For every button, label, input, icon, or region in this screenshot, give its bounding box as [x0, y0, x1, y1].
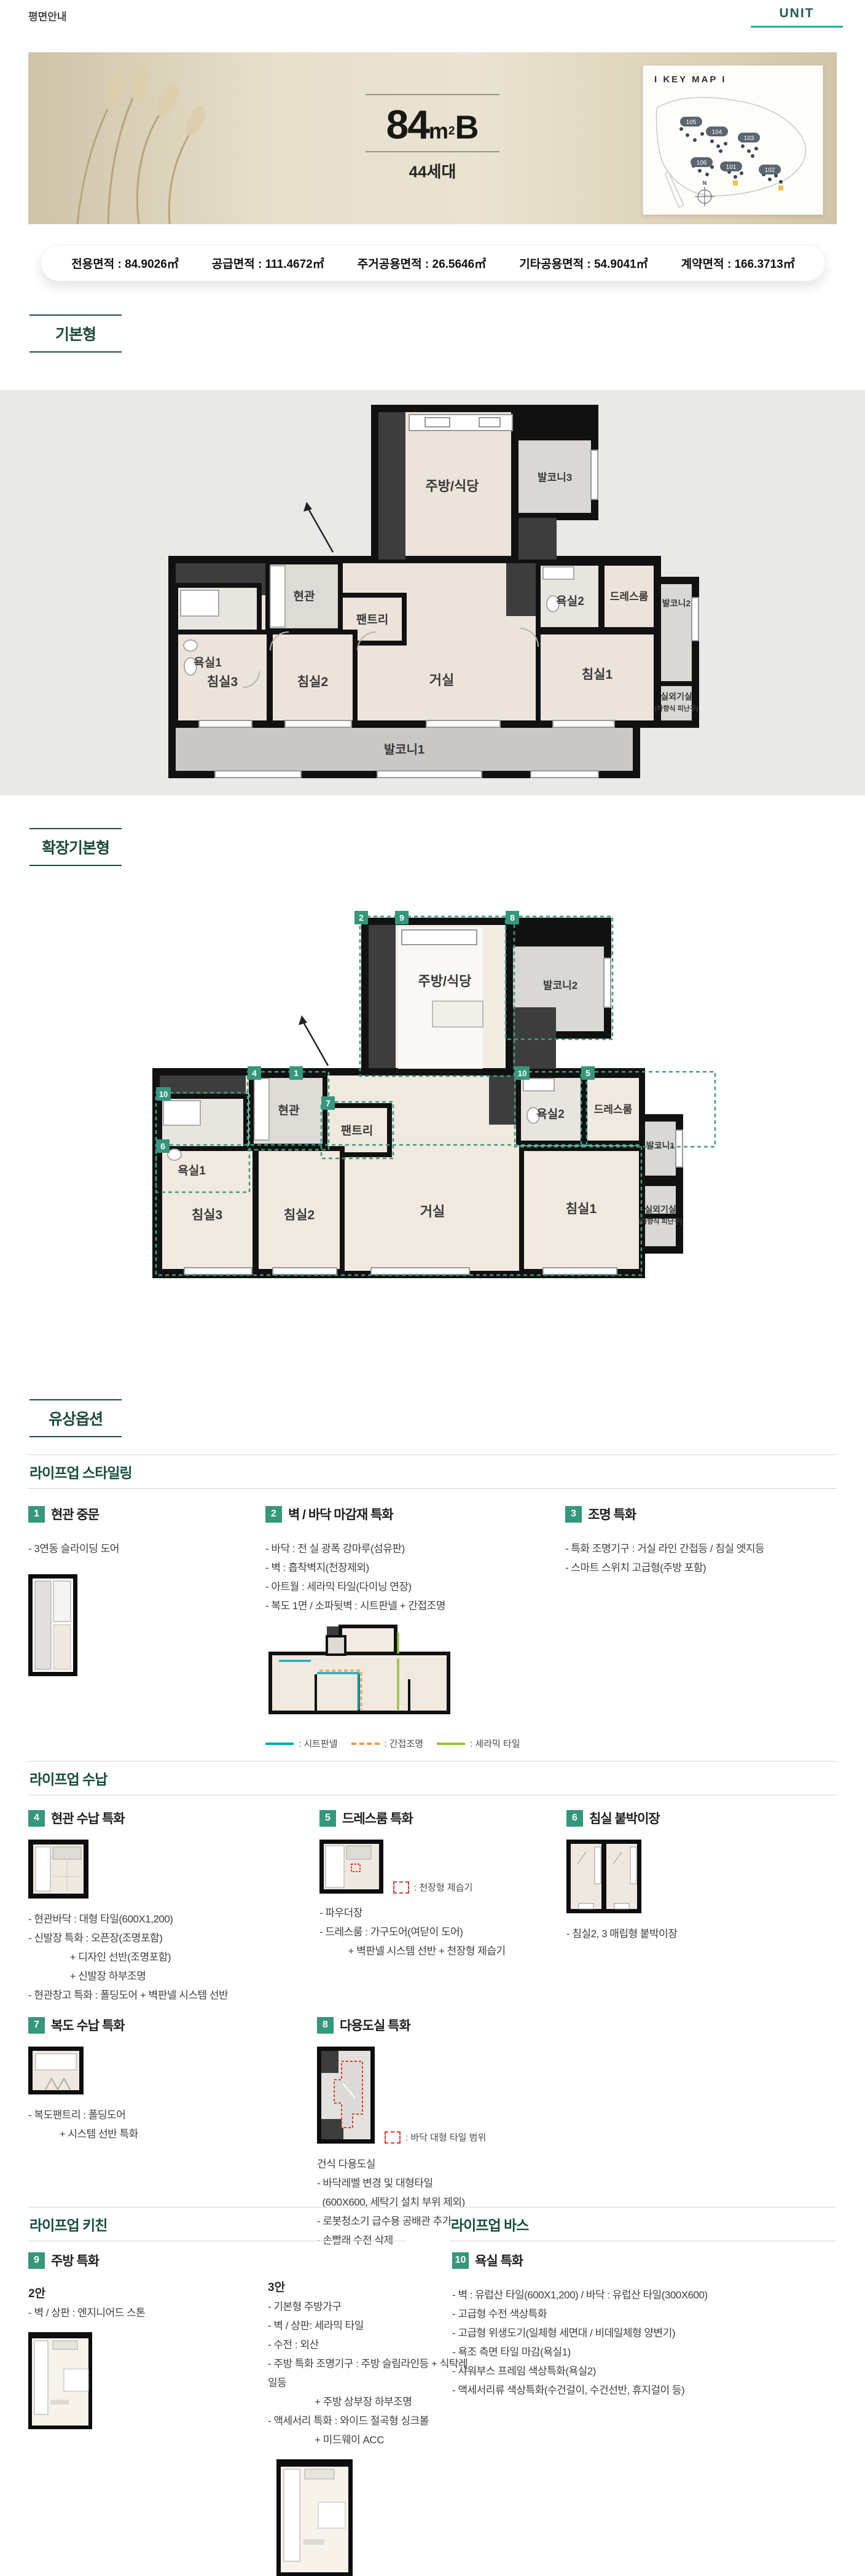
text-line: - 3연동 슬라이딩 도어 [28, 1539, 249, 1558]
room-label-bedroom2: 침실2 [284, 1208, 315, 1222]
keymap-title: I KEY MAP I [654, 74, 823, 85]
tag-6: 6 [160, 1141, 165, 1151]
text-line: - 복도 1면 / 소파뒷벽 : 시트판넬 + 간접조명 [265, 1596, 554, 1615]
legend-indirect-light: : 간접조명 [351, 1737, 424, 1750]
room-label-pantry: 팬트리 [356, 613, 388, 626]
floor-plan-extended: 2 9 8 4 1 7 10 10 5 6 주방/식당 발코니2 현관 팬트리 … [144, 884, 721, 1308]
room-label-bath1: 욕실1 [178, 1164, 206, 1177]
keymap-site-plan: 105 104 103 106 101 102 N [643, 85, 821, 211]
text-line: - 현관바닥 : 대형 타일(600X1,200) [28, 1910, 262, 1929]
legend-label: : 간접조명 [385, 1737, 424, 1750]
option-title: 욕실 특화 [475, 2251, 523, 2270]
unit-type-title: 84m2B [334, 101, 531, 148]
room-label-bedroom1: 침실1 [582, 668, 613, 682]
option-title: 주방 특화 [51, 2251, 99, 2270]
unit-type-block: 84m2B 44세대 [334, 95, 531, 182]
text-line: 기타공용면적 : 54.9041㎡ [519, 255, 648, 271]
text-line: - 신발장 특화 : 오픈장(조명포함) [28, 1929, 262, 1948]
room-label-living: 거실 [429, 673, 454, 688]
room-label-balcony2: 발코니2 [543, 980, 577, 991]
section-label-basic: 기본형 [29, 314, 122, 353]
text-line: - 벽 : 흡착벽지(천장제외) [265, 1558, 554, 1577]
kitchen-option2-label: 2안 [28, 2284, 249, 2301]
unit-type-suffix: B [455, 109, 479, 146]
option-title: 드레스룸 특화 [342, 1809, 413, 1827]
keymap-card: I KEY MAP I 105 104 103 106 101 102 [643, 65, 823, 215]
text-line: - 바닥레벨 변경 및 대형타일 [317, 2174, 593, 2193]
text-line: - 스마트 스위치 고급형(주방 포함) [565, 1558, 836, 1577]
kitchen-interior [398, 927, 483, 1069]
option-item-5: 5드레스룸 특화 : 천장형 제습기 - 파우더장- 드레스룸 : 가구도어(여… [319, 1809, 565, 1961]
top-bar: 평면안내 UNIT [0, 0, 865, 38]
option-item-10: 10욕실 특화 - 벽 : 유럽산 타일(600X1,200) / 바닥 : 유… [452, 2251, 833, 2400]
text-line: 건식 다용도실 [317, 2155, 593, 2174]
room-label-balcony2: 발코니2 [662, 598, 691, 608]
legend-sheet-panel: : 시트판넬 [265, 1737, 338, 1750]
option-title: 다용도실 특화 [340, 2016, 410, 2034]
compass-north-label: N [703, 180, 707, 186]
text-line: - 벽 / 상판 : 엔지니어드 스톤 [28, 2303, 249, 2322]
section-lifeup-kitchen-bath: 라이프업 키친 라이프업 바스 9주방 특화 2안 - 벽 / 상판 : 엔지니… [28, 2202, 837, 2491]
option-item-2: 2벽 / 바닥 마감재 특화 - 바닥 : 전 실 광폭 강마루(섬유판)- 벽… [265, 1505, 554, 1750]
legend-label: : 바닥 대형 타일 범위 [405, 2131, 486, 2144]
finish-legend: : 시트판넬 : 간접조명 : 세라믹 타일 [265, 1737, 554, 1750]
building-label-106: 106 [697, 160, 707, 166]
room-label-bedroom3: 침실3 [207, 675, 238, 689]
tag-9: 9 [399, 913, 404, 923]
floor-plan-basic-panel: 주방/식당 발코니3 현관 팬트리 욕실1 욕실2 드레스룸 발코니2 침실3 … [0, 390, 865, 795]
text-line: - 액세서리 특화 : 와이드 절곡형 싱크볼 [268, 2411, 471, 2430]
option-title: 현관 수납 특화 [51, 1809, 125, 1827]
room-label-bedroom2: 침실2 [297, 675, 328, 689]
tag-10a: 10 [159, 1090, 168, 1099]
room-label-bedroom1: 침실1 [566, 1202, 597, 1216]
option-title: 벽 / 바닥 마감재 특화 [288, 1505, 393, 1523]
unit-area-number: 84 [386, 102, 428, 147]
text-line: + 신발장 하부조명 [28, 1967, 262, 1986]
room-label-dressroom: 드레스룸 [610, 591, 649, 603]
divider-bottom [366, 152, 499, 152]
text-line: 전용면적 : 84.9026㎡ [71, 255, 179, 271]
option-lines: - 현관바닥 : 대형 타일(600X1,200)- 신발장 특화 : 오픈장(… [28, 1910, 262, 2005]
room-label-dressroom: 드레스룸 [594, 1104, 633, 1115]
legend-label: : 세라믹 타일 [470, 1737, 520, 1750]
option-lines: - 침실2, 3 매립형 붙박이장 [566, 1924, 837, 1943]
building-label-101: 101 [726, 164, 737, 171]
legend-label: : 시트판넬 [299, 1737, 338, 1750]
option-item-6: 6침실 붙박이장 - 침실2, 3 매립형 붙박이장 [566, 1809, 837, 1943]
option-item-3: 3조명 특화 - 특화 조명기구 : 거실 라인 간접등 / 침실 엣지등- 스… [565, 1505, 836, 1577]
tab-unit-label: UNIT [780, 6, 815, 20]
room-label-outdoor: 실외기실 [660, 692, 692, 701]
floor-tile-swatch [385, 2131, 401, 2144]
thumb-kitchen-plan3 [276, 2459, 353, 2576]
option-title: 조명 특화 [588, 1505, 636, 1523]
room-label-entrance: 현관 [294, 590, 315, 603]
dehumidifier-swatch [393, 1881, 409, 1894]
tag-2: 2 [359, 913, 364, 923]
text-line: 주거공용면적 : 26.5646㎡ [358, 255, 486, 271]
option-title: 침실 붙박이장 [589, 1809, 660, 1827]
keymap-unit-dots [679, 127, 783, 184]
building-label-103: 103 [744, 135, 754, 142]
room-label-outdoor: 실외기실 [644, 1204, 676, 1214]
option-item-1: 1현관 중문 - 3연동 슬라이딩 도어 [28, 1505, 249, 1676]
option-item-4: 4현관 수납 특화 - 현관바닥 : 대형 타일(600X1,200)- 신발장… [28, 1809, 262, 2005]
indirect-light-swatch [351, 1743, 380, 1745]
text-line: - 아트월 : 세라믹 타일(다이닝 연장) [265, 1577, 554, 1596]
option-lines: - 복도팬트리 : 폴딩도어 + 시스템 선반 특화 [28, 2106, 262, 2144]
room-label-kitchen: 주방/식당 [418, 974, 471, 989]
heading-lifeup-bath: 라이프업 바스 [450, 2207, 837, 2241]
text-line: - 벽 / 상판: 세라믹 타일 [268, 2316, 471, 2335]
tab-active-underline [751, 26, 843, 28]
thumb-builtin-closet [566, 1840, 641, 1913]
option-number-badge: 9 [28, 2252, 45, 2269]
building-label-102: 102 [765, 167, 775, 174]
room-label-bath2: 욕실2 [536, 1107, 565, 1121]
ceramic-tile-swatch [437, 1743, 465, 1745]
tab-unit[interactable]: UNIT [751, 6, 843, 28]
tag-5: 5 [585, 1068, 590, 1078]
room-label-entrance: 현관 [278, 1104, 300, 1117]
option-number-badge: 4 [28, 1810, 45, 1827]
text-line: - 액세서리류 색상특화(수건걸이, 수건선반, 휴지걸이 등) [452, 2381, 833, 2400]
option-number-badge: 2 [265, 1506, 282, 1523]
legend-label: : 천장형 제습기 [414, 1881, 472, 1894]
kitchen-option3-label: 3안 [268, 2278, 471, 2295]
text-line: - 침실2, 3 매립형 붙박이장 [566, 1924, 837, 1943]
text-line: - 기본형 주방가구 [268, 2297, 471, 2316]
text-line: 계약면적 : 166.3713㎡ [681, 255, 795, 271]
heading-lifeup-styling: 라이프업 스타일링 [28, 1454, 837, 1489]
thumb-finish-plan [268, 1624, 452, 1728]
floor-plan-extended-panel: 2 9 8 4 1 7 10 10 5 6 주방/식당 발코니2 현관 팬트리 … [0, 884, 865, 1314]
unit-area-exponent: 2 [448, 125, 455, 138]
room-label-balcony1: 발코니1 [384, 743, 425, 757]
section-lifeup-styling: 라이프업 스타일링 1현관 중문 - 3연동 슬라이딩 도어 2벽 / 바닥 마… [28, 1454, 837, 1758]
thumb-kitchen-plan2 [28, 2332, 92, 2429]
hero-banner: 84m2B 44세대 I KEY MAP I 105 104 103 [28, 52, 837, 224]
text-line: - 현관창고 특화 : 폴딩도어 + 벽판넬 시스템 선반 [28, 1986, 262, 2005]
heading-lifeup-storage: 라이프업 수납 [28, 1761, 837, 1795]
option-item-9: 9주방 특화 2안 - 벽 / 상판 : 엔지니어드 스톤 [28, 2251, 249, 2429]
room-label-balcony3: 발코니3 [538, 472, 572, 483]
households-count: 44세대 [334, 160, 531, 182]
text-line: - 샤워부스 프레임 색상특화(욕실2) [452, 2362, 833, 2381]
tag-7: 7 [326, 1098, 331, 1108]
option-number-badge: 7 [28, 2017, 45, 2034]
area-info-bar: 전용면적 : 84.9026㎡공급면적 : 111.4672㎡주거공용면적 : … [41, 244, 826, 281]
floor-plan-basic: 주방/식당 발코니3 현관 팬트리 욕실1 욕실2 드레스룸 발코니2 침실3 … [162, 401, 703, 788]
text-line: - 드레스룸 : 가구도어(여닫이 도어) [319, 1922, 565, 1942]
option-lines: - 바닥 : 전 실 광폭 강마루(섬유판)- 벽 : 흡착벽지(천장제외)- … [265, 1539, 554, 1615]
option-item-7: 7복도 수납 특화 - 복도팬트리 : 폴딩도어 + 시스템 선반 특화 [28, 2016, 262, 2144]
option-number-badge: 1 [28, 1506, 45, 1523]
compass-icon [695, 187, 714, 206]
option-number-badge: 3 [565, 1506, 582, 1523]
text-line: - 파우더장 [319, 1903, 565, 1922]
page-title: 평면안내 [28, 8, 67, 23]
pampas-grass-decoration [41, 52, 299, 224]
sheet-panel-swatch [265, 1743, 294, 1745]
option-item-9-plan3: 3안 - 기본형 주방가구- 벽 / 상판: 세라믹 타일- 수전 : 외산- … [268, 2251, 471, 2576]
entrance-arrow [299, 1015, 328, 1066]
option-lines: - 3연동 슬라이딩 도어 [28, 1539, 249, 1558]
room-label-bedroom3: 침실3 [192, 1208, 222, 1222]
kitchen-counter [409, 415, 512, 431]
kitchen-option3-lines: - 기본형 주방가구- 벽 / 상판: 세라믹 타일- 수전 : 외산- 주방 … [268, 2297, 471, 2449]
text-line: - 바닥 : 전 실 광폭 강마루(섬유판) [265, 1539, 554, 1558]
tag-8: 8 [510, 913, 515, 923]
tag-1: 1 [294, 1068, 299, 1078]
text-line: 공급면적 : 111.4672㎡ [212, 255, 324, 271]
text-line: - 수전 : 외산 [268, 2335, 471, 2354]
text-line: - 고급형 수전 색상특화 [452, 2305, 833, 2324]
text-line: - 주방 특화 조명기구 : 주방 슬림라인등 + 식탁레일등 [268, 2354, 471, 2392]
room-label-living: 거실 [420, 1204, 445, 1219]
section-label-paid-options: 유상옵션 [29, 1399, 122, 1437]
dehumidifier-legend: : 천장형 제습기 [393, 1881, 472, 1894]
option-title: 현관 중문 [51, 1505, 99, 1523]
text-line: - 고급형 위생도기(일체형 세면대 / 비데일체형 양변기) [452, 2324, 833, 2343]
option-lines: - 파우더장- 드레스룸 : 가구도어(여닫이 도어) + 벽판넬 시스템 선반… [319, 1903, 565, 1961]
thumb-entrance-door [28, 1574, 77, 1676]
unit-area-unit: m [429, 119, 448, 144]
keymap-building-labels: 105 104 103 106 101 102 [680, 117, 781, 174]
text-line: + 주방 상부장 하부조명 [268, 2392, 471, 2411]
text-line: + 벽판넬 시스템 선반 + 천장형 제습기 [319, 1942, 565, 1961]
text-line: - 특화 조명기구 : 거실 라인 간접등 / 침실 엣지등 [565, 1539, 836, 1558]
option-number-badge: 5 [319, 1810, 336, 1827]
thumb-dressroom [319, 1840, 383, 1894]
legend-ceramic-tile: : 세라믹 타일 [437, 1737, 520, 1750]
room-label-pantry: 팬트리 [341, 1124, 373, 1138]
text-line: - 벽 : 유럽산 타일(600X1,200) / 바닥 : 유럽산 타일(30… [452, 2285, 833, 2305]
entrance-arrow [303, 502, 333, 552]
building-label-104: 104 [712, 129, 722, 136]
option-number-badge: 8 [317, 2017, 334, 2034]
section-label-extended: 확장기본형 [29, 828, 122, 866]
keymap-highlighted-units [733, 181, 783, 190]
text-line: - 욕조 측면 타일 마감(욕실1) [452, 2343, 833, 2362]
room-label-outdoor-sub: (하향식 피난구) [638, 1217, 682, 1225]
room-label-outdoor-sub: (하향식 피난구) [654, 704, 698, 712]
heading-lifeup-kitchen: 라이프업 키친 [28, 2207, 405, 2241]
building-label-105: 105 [686, 119, 697, 126]
thumb-utility-room [317, 2047, 375, 2144]
option-number-badge: 6 [566, 1810, 583, 1827]
room-label-balcony1: 발코니1 [646, 1141, 675, 1150]
thumb-hallway-pantry [28, 2047, 84, 2094]
section-lifeup-storage: 라이프업 수납 4현관 수납 특화 - 현관바닥 : 대형 타일(600X1,2… [28, 1761, 837, 2200]
option-lines: - 벽 : 유럽산 타일(600X1,200) / 바닥 : 유럽산 타일(30… [452, 2285, 833, 2400]
room-label-bath2: 욕실2 [556, 595, 584, 608]
option-lines: - 특화 조명기구 : 거실 라인 간접등 / 침실 엣지등- 스마트 스위치 … [565, 1539, 836, 1577]
kitchen-option2-lines: - 벽 / 상판 : 엔지니어드 스톤 [28, 2303, 249, 2322]
room-label-bath1: 욕실1 [194, 656, 222, 669]
text-line: + 시스템 선반 특화 [28, 2125, 262, 2144]
text-line: + 디자인 선반(조명포함) [28, 1948, 262, 1967]
thumb-entry-storage [28, 1840, 88, 1899]
option-number-badge: 10 [452, 2252, 469, 2269]
text-line: - 복도팬트리 : 폴딩도어 [28, 2106, 262, 2125]
tag-4: 4 [252, 1068, 257, 1078]
divider-top [366, 95, 499, 95]
text-line: + 미드웨이 ACC [268, 2430, 471, 2449]
floor-tile-legend: : 바닥 대형 타일 범위 [385, 2131, 486, 2144]
room-label-kitchen: 주방/식당 [425, 478, 479, 494]
option-title: 복도 수납 특화 [51, 2016, 125, 2034]
tag-10b: 10 [518, 1069, 526, 1078]
